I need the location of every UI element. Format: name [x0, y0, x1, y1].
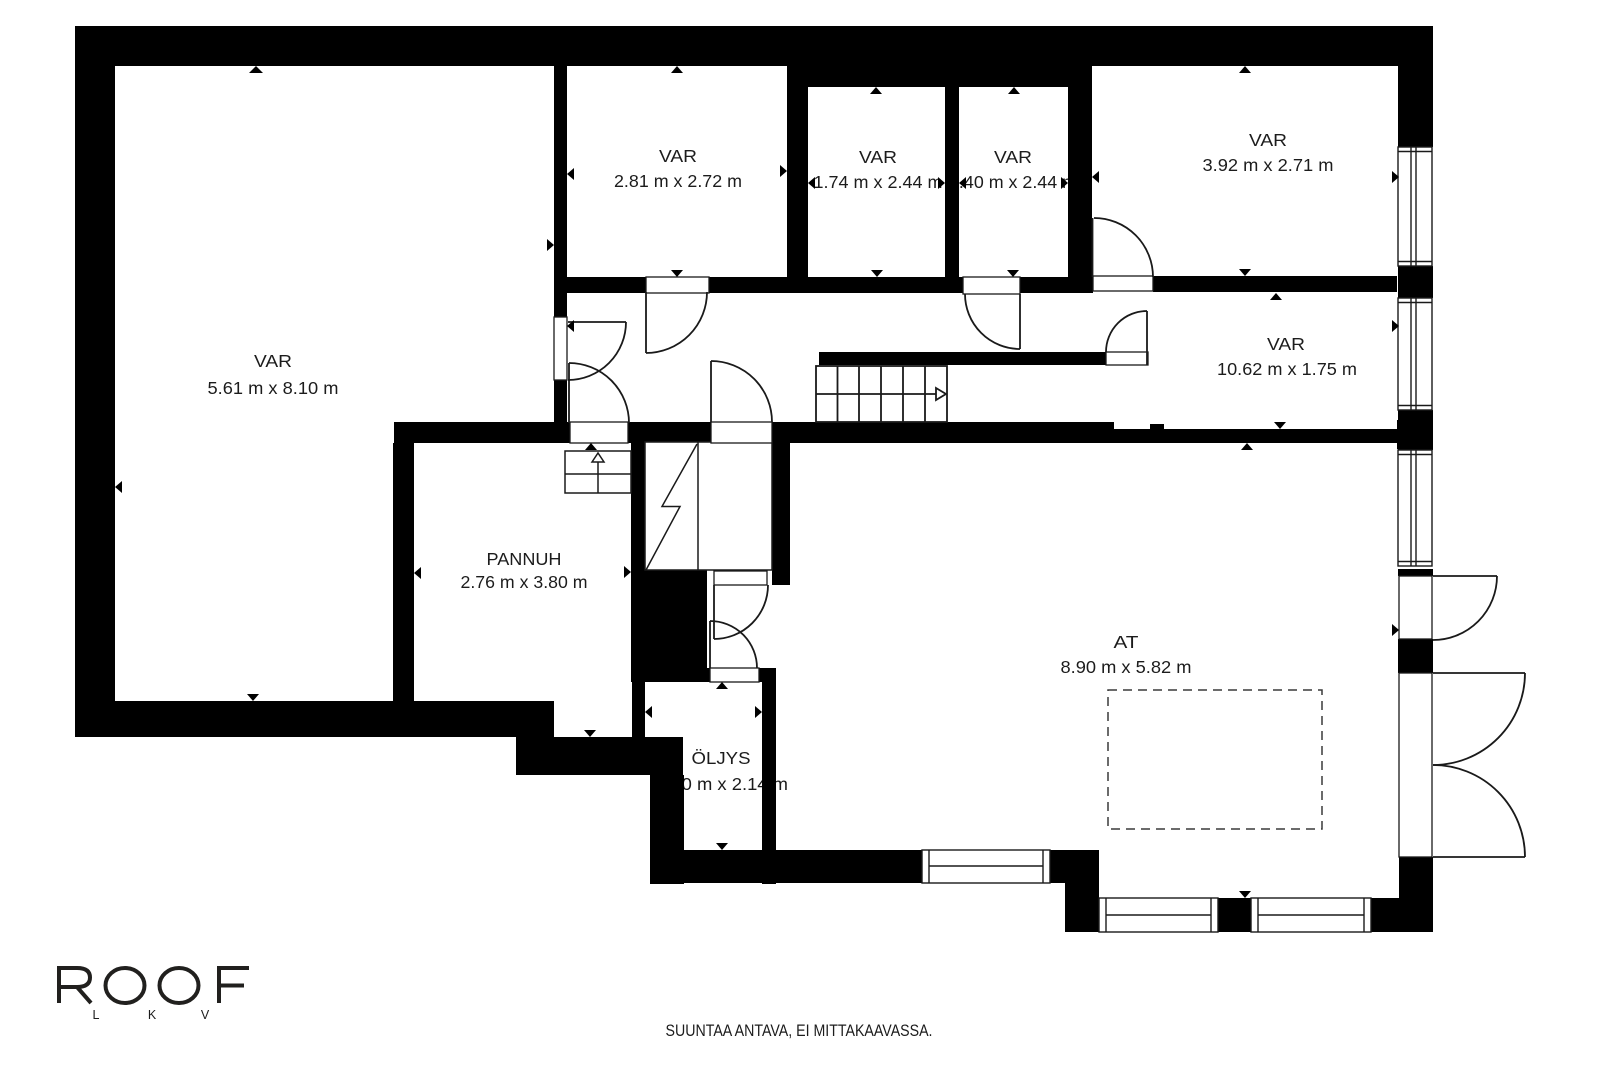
svg-text:2.81 m x 2.72 m: 2.81 m x 2.72 m	[614, 171, 742, 191]
svg-text:SUUNTAA ANTAVA, EI MITTAKAAVAS: SUUNTAA ANTAVA, EI MITTAKAAVASSA.	[666, 1022, 933, 1040]
svg-text:PANNUH: PANNUH	[487, 549, 562, 569]
svg-text:AT: AT	[1114, 632, 1139, 652]
svg-text:VAR: VAR	[1267, 334, 1305, 354]
svg-text:5.61 m x 8.10 m: 5.61 m x 8.10 m	[208, 378, 339, 398]
svg-text:VAR: VAR	[254, 351, 292, 371]
svg-text:1.74 m x 2.44 m: 1.74 m x 2.44 m	[814, 172, 943, 192]
svg-text:8.90 m x 5.82 m: 8.90 m x 5.82 m	[1061, 657, 1192, 677]
svg-text:K: K	[148, 1008, 157, 1022]
svg-text:10.62 m x 1.75 m: 10.62 m x 1.75 m	[1217, 359, 1357, 379]
svg-text:L: L	[93, 1008, 100, 1022]
svg-text:VAR: VAR	[1249, 130, 1287, 150]
svg-text:VAR: VAR	[994, 147, 1032, 167]
svg-text:V: V	[201, 1008, 210, 1022]
svg-text:VAR: VAR	[659, 146, 697, 166]
svg-text:ÖLJYS: ÖLJYS	[692, 748, 751, 768]
svg-text:2.76 m x 3.80 m: 2.76 m x 3.80 m	[461, 572, 588, 592]
svg-text:3.92 m x 2.71 m: 3.92 m x 2.71 m	[1203, 155, 1334, 175]
svg-text:1.40 m x 2.44 m: 1.40 m x 2.44 m	[949, 172, 1077, 192]
svg-text:VAR: VAR	[859, 147, 897, 167]
